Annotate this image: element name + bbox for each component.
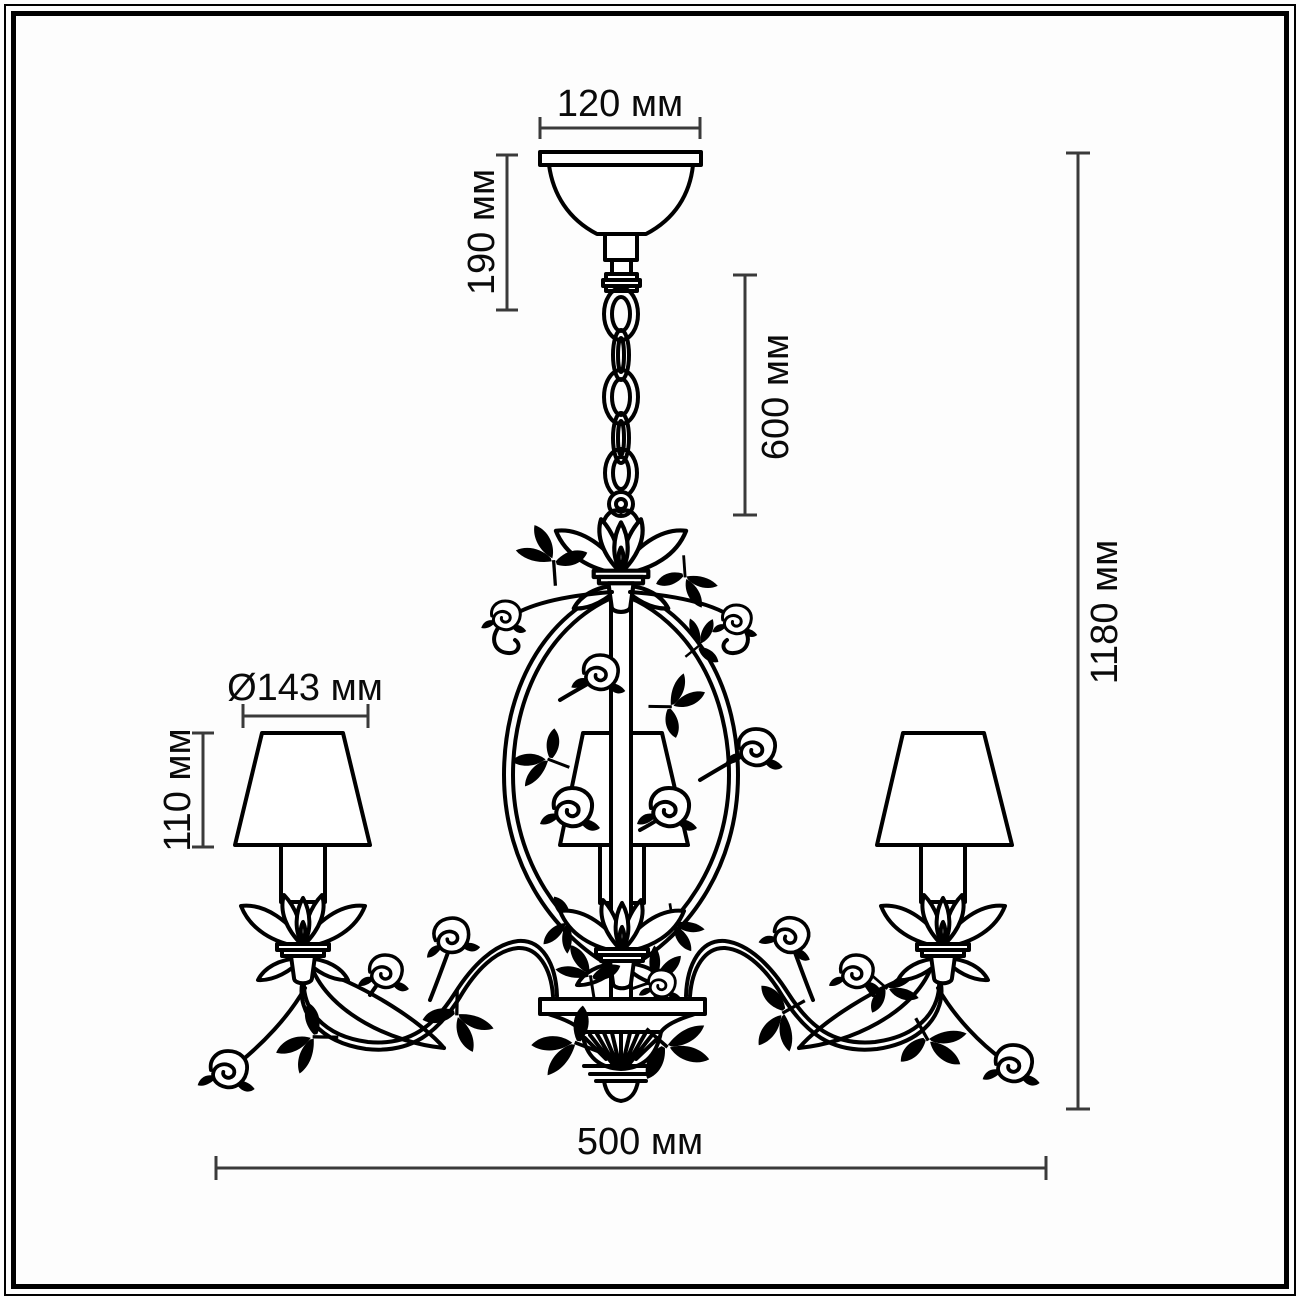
ceiling-canopy [540, 152, 701, 291]
rose-ornament [419, 912, 481, 963]
rose-ornament [358, 955, 409, 991]
dimension-canopy-drop: 190 мм [461, 155, 518, 310]
dimension-shade-diameter-label: Ø143 мм [227, 667, 383, 709]
rose-ornament [481, 601, 526, 633]
rose-ornament [757, 911, 819, 962]
dimension-shade-diameter: Ø143 мм [227, 667, 383, 728]
chandelier-diagram: 120 мм 190 мм 600 мм 1180 мм Ø143 мм 110… [0, 0, 1300, 1300]
dimension-canopy-width: 120 мм [540, 83, 700, 139]
dimension-canopy-drop-label: 190 мм [461, 169, 503, 295]
tendril-left [481, 509, 612, 653]
chain-link [604, 370, 638, 424]
dimension-canopy-width-label: 120 мм [557, 83, 683, 125]
arm-left [198, 912, 557, 1091]
candle-left [281, 845, 325, 902]
bobeche-left [241, 895, 365, 983]
chain-link [605, 449, 637, 497]
dimension-shade-height: 110 мм [157, 728, 214, 851]
bobeche-right [881, 895, 1005, 983]
hanging-hook [603, 492, 639, 523]
dimension-total-height-label: 1180 мм [1084, 540, 1126, 685]
lampshade-right [877, 733, 1012, 902]
arm-right [686, 911, 1040, 1088]
dimension-shade-height-label: 110 мм [157, 728, 199, 851]
suspension-chain [603, 288, 639, 523]
chain-link [604, 288, 638, 340]
dimension-total-width: 500 мм [216, 1121, 1046, 1180]
candle-right [921, 845, 965, 902]
leaf-ornament [510, 509, 592, 592]
drawing-sheet: 120 мм 190 мм 600 мм 1180 мм Ø143 мм 110… [0, 0, 1300, 1300]
dimension-total-height: 1180 мм [1066, 153, 1126, 1109]
rose-ornament [829, 955, 880, 991]
bottom-bowl [526, 999, 715, 1101]
lampshade-left [235, 733, 370, 902]
dimension-chain-length-label: 600 мм [755, 334, 797, 460]
leaf-ornament [643, 669, 717, 742]
dimension-chain-length: 600 мм [733, 275, 797, 515]
dimension-total-width-label: 500 мм [577, 1121, 703, 1163]
